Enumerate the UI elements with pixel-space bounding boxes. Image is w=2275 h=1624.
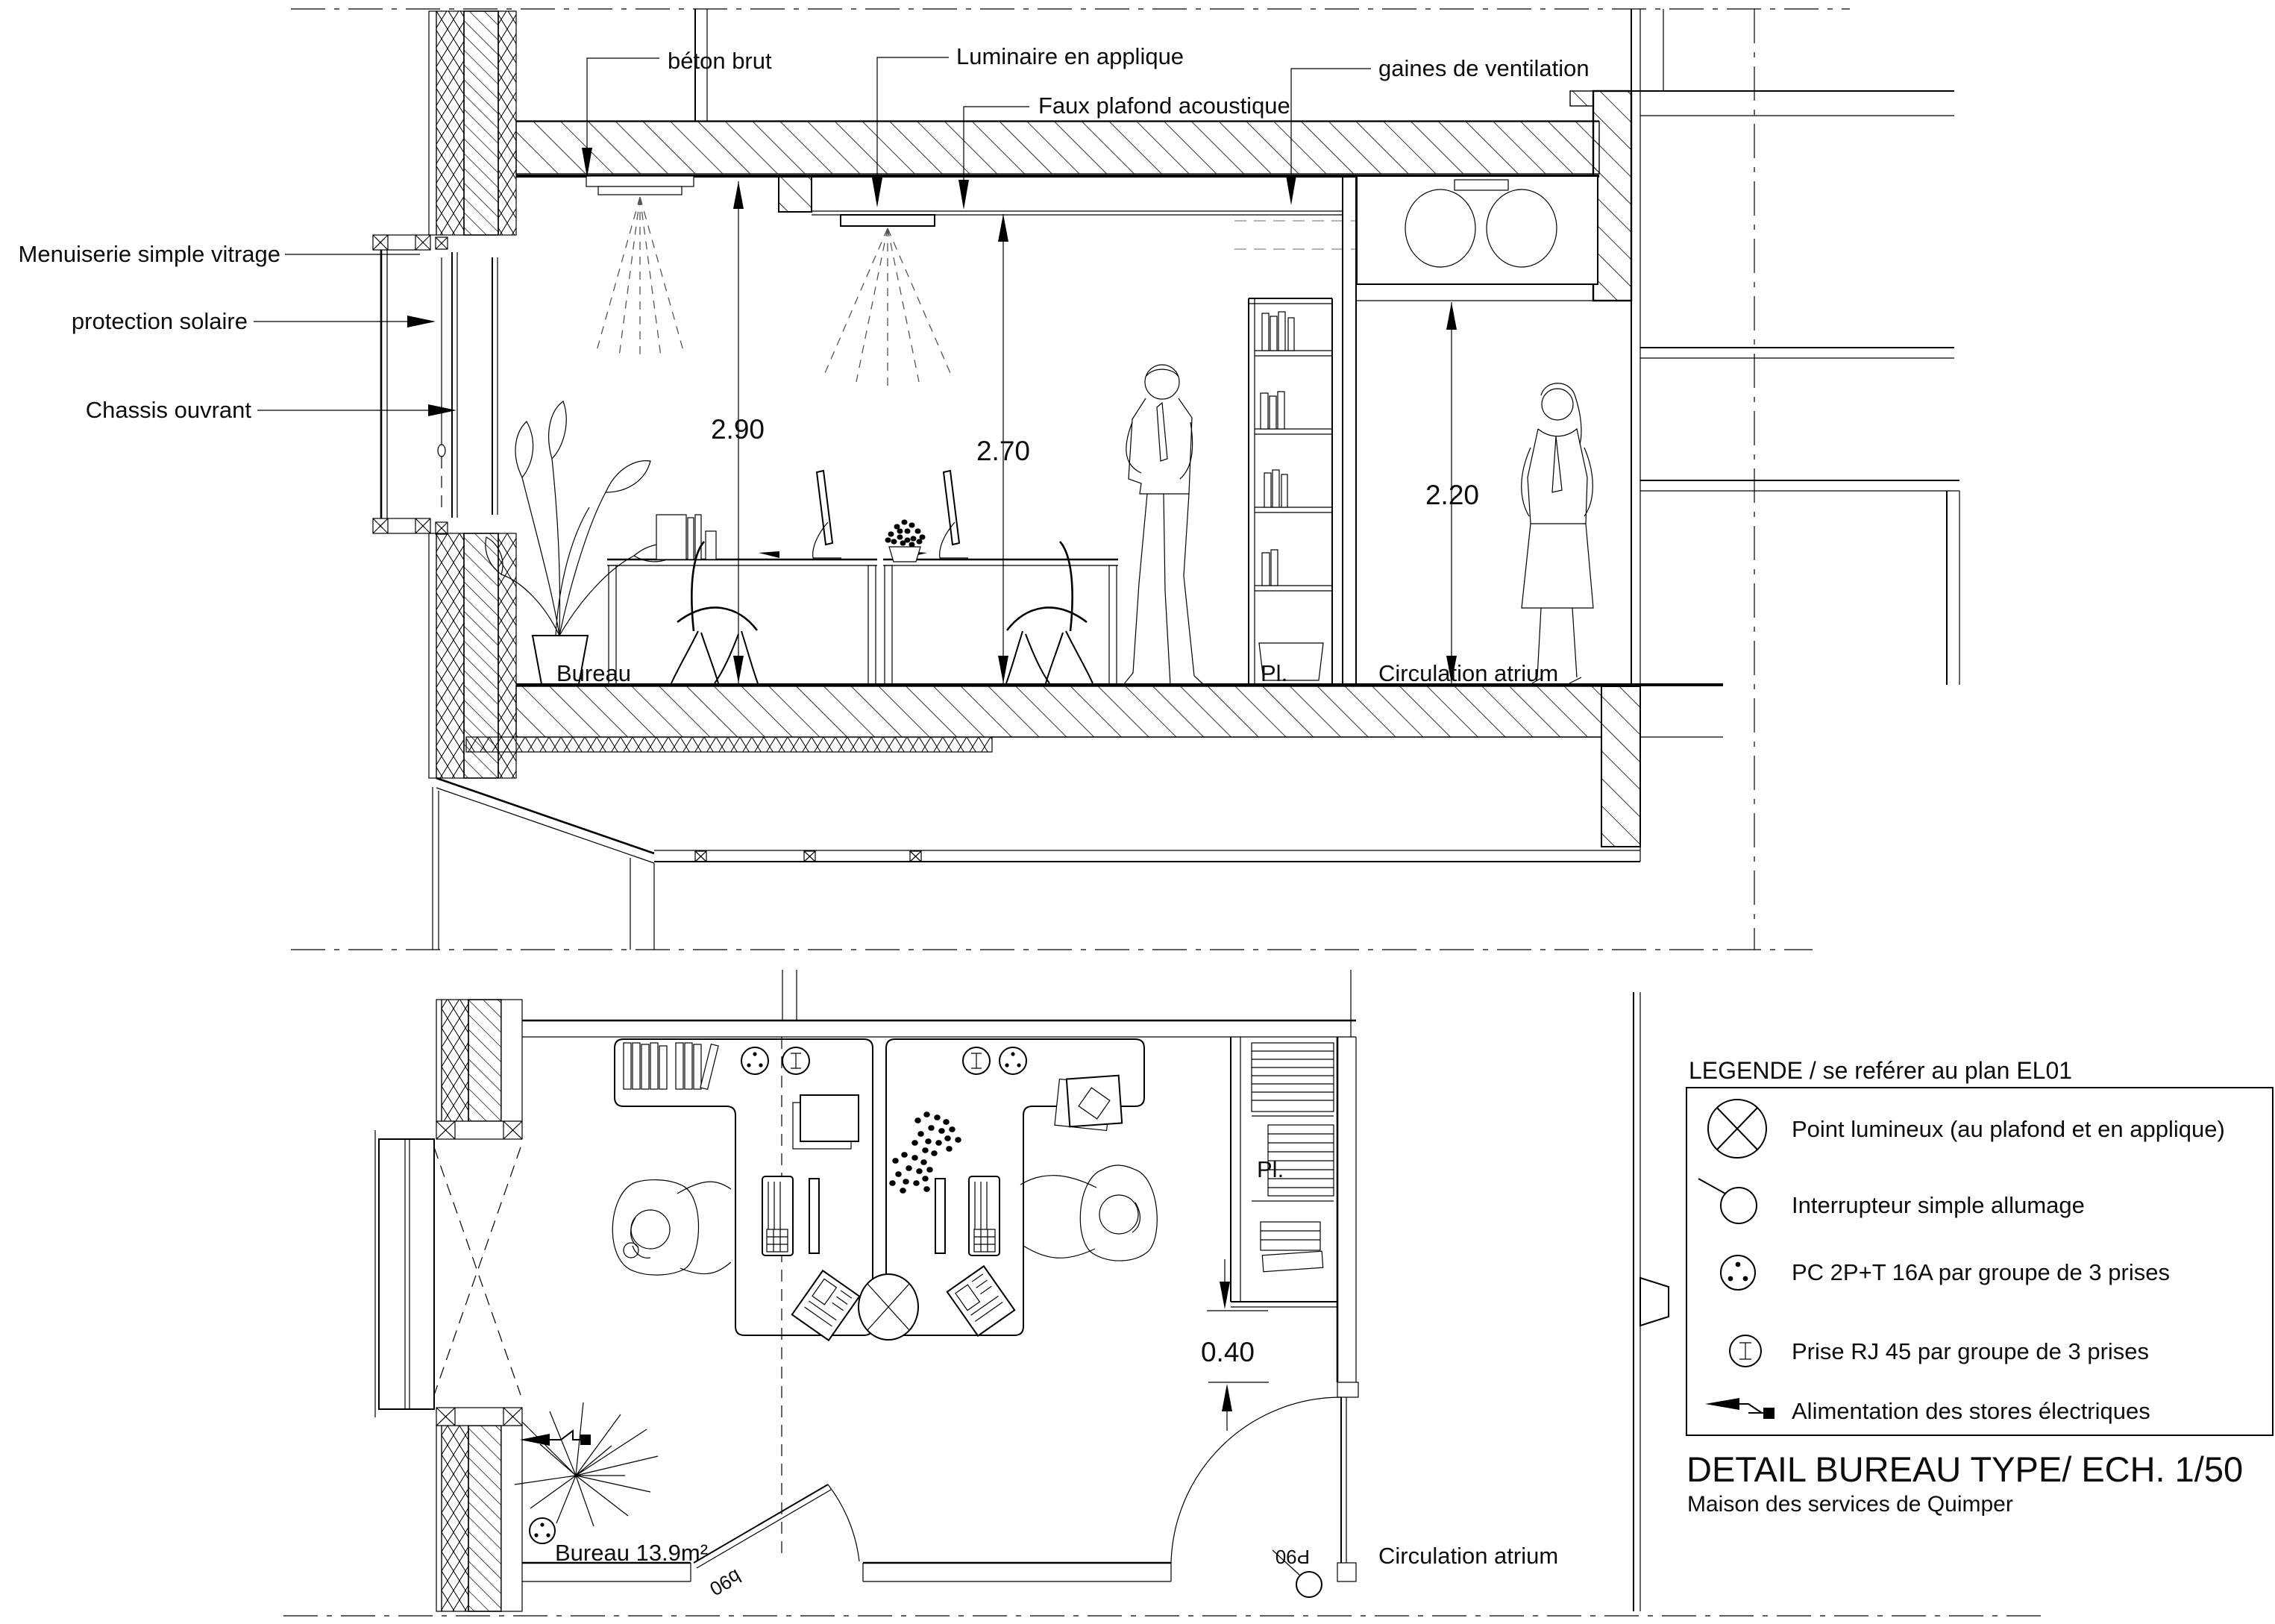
monitor-section-1 (813, 471, 841, 558)
people-plan (612, 1165, 1157, 1275)
dimension-270: 2.70 (976, 214, 1030, 683)
callout-chassis-ouvrant: Chassis ouvrant (86, 397, 252, 423)
label-placard-plan: Pl. (1257, 1156, 1284, 1182)
legend-title: LEGENDE / se reférer au plan EL01 (1689, 1057, 2072, 1084)
room-labels-section: Bureau Pl. Circulation atrium (556, 660, 1558, 686)
callout-beton-brut: béton brut (668, 48, 772, 74)
legend-label-pc: PC 2P+T 16A par groupe de 3 prises (1792, 1259, 2170, 1285)
architectural-drawing: 2.90 2.70 2.20 béton brut Luminaire en a… (0, 0, 2275, 1624)
shelf-books (1261, 312, 1294, 586)
corridor-door-plan: P90 (1171, 1382, 1358, 1568)
applique-luminaire (841, 215, 935, 226)
workstation-right (935, 1176, 1000, 1255)
chair-section-2 (1006, 542, 1093, 683)
papers-right (1055, 1076, 1122, 1131)
standing-woman (1522, 383, 1593, 683)
workstation-left (762, 1176, 819, 1255)
legend-label-point-lumineux: Point lumineux (au plafond et en appliqu… (1792, 1116, 2225, 1142)
section-view: 2.90 2.70 2.20 béton brut Luminaire en a… (19, 9, 1959, 950)
window-section (373, 235, 498, 534)
corridor-plan: Circulation atrium (1378, 1278, 1669, 1569)
plant-dots-plan (892, 1114, 958, 1191)
monitor-section-2 (940, 471, 968, 558)
ventilation-ducts (1234, 176, 1598, 301)
shelf-unit-section (1249, 298, 1332, 685)
callout-luminaire: Luminaire en applique (956, 43, 1184, 69)
rj45-symbol-1 (782, 1047, 809, 1074)
dim-niche-depth: 0.40 (1201, 1337, 1255, 1367)
section-callouts: béton brut Luminaire en applique Faux pl… (19, 43, 1590, 423)
people-section (1123, 365, 1593, 685)
exterior-wall-plan (436, 1000, 522, 1611)
ceiling-lights (586, 176, 1343, 386)
legend-label-stores: Alimentation des stores électriques (1792, 1398, 2150, 1424)
window-plan (375, 1121, 522, 1426)
closet-plan: Pl. (1231, 1037, 1337, 1307)
standing-man (1123, 365, 1204, 685)
callout-gaines: gaines de ventilation (1378, 55, 1590, 81)
partition-wall-section (1343, 176, 1356, 685)
callout-menuiserie: Menuiserie simple vitrage (19, 241, 280, 267)
electrical-symbols-plan (515, 1047, 1322, 1597)
rj45-symbol-2 (963, 1047, 990, 1074)
legend-label-rj45: Prise RJ 45 par groupe de 3 prises (1792, 1338, 2149, 1364)
dim-room-height: 2.90 (711, 414, 765, 445)
pc-socket-symbol-3 (530, 1518, 555, 1543)
person-plan-left (612, 1180, 731, 1276)
ceiling-light-symbol (859, 1274, 918, 1340)
drawing-sheet: 2.90 2.70 2.20 béton brut Luminaire en a… (0, 0, 2275, 1624)
dim-atrium-height: 2.20 (1425, 480, 1479, 510)
legend-item-rj45: Prise RJ 45 par groupe de 3 prises (1730, 1335, 2149, 1367)
label-circulation-plan: Circulation atrium (1378, 1543, 1558, 1569)
phone-right (947, 1266, 1014, 1335)
callout-faux-plafond: Faux plafond acoustique (1038, 93, 1290, 119)
phone-left (792, 1270, 859, 1340)
desk-books (656, 515, 716, 559)
legend: LEGENDE / se reférer au plan EL01 Point … (1686, 1057, 2273, 1435)
label-door-b90: b90 (706, 1565, 745, 1601)
label-bureau-plan: Bureau 13.9m² (555, 1540, 708, 1566)
pc-socket-symbol-1 (741, 1047, 768, 1074)
label-bureau-section: Bureau (556, 660, 631, 686)
papers-left (793, 1095, 859, 1149)
spiky-plant-plan (515, 1402, 658, 1526)
person-plan-right (1020, 1165, 1157, 1261)
legend-label-interrupteur: Interrupteur simple allumage (1792, 1192, 2085, 1218)
pc-socket-symbol-2 (1000, 1047, 1026, 1074)
title-block: DETAIL BUREAU TYPE/ ECH. 1/50 Maison des… (1686, 1449, 2243, 1517)
dimension-220: 2.20 (1425, 302, 1479, 683)
books-plan (624, 1043, 718, 1089)
label-circulation-section: Circulation atrium (1378, 660, 1558, 686)
chair-section-1 (671, 542, 758, 683)
dimension-040: 0.40 (1201, 1259, 1269, 1431)
desks-plan (615, 1039, 1144, 1341)
label-placard-section: Pl. (1261, 660, 1287, 686)
dim-ceiling-height: 2.70 (976, 436, 1030, 466)
drawing-title: DETAIL BUREAU TYPE/ ECH. 1/50 (1686, 1449, 2243, 1489)
atrium-structure-right (1631, 9, 1959, 737)
furniture-section (486, 298, 1332, 685)
drawing-subtitle: Maison des services de Quimper (1687, 1492, 2013, 1517)
soffit-fixings (695, 851, 921, 862)
floor-slab-section (466, 685, 1723, 862)
callout-protection-solaire: protection solaire (72, 308, 248, 334)
office-door-plan: b90 (694, 1485, 859, 1600)
desk-plant (888, 522, 923, 562)
